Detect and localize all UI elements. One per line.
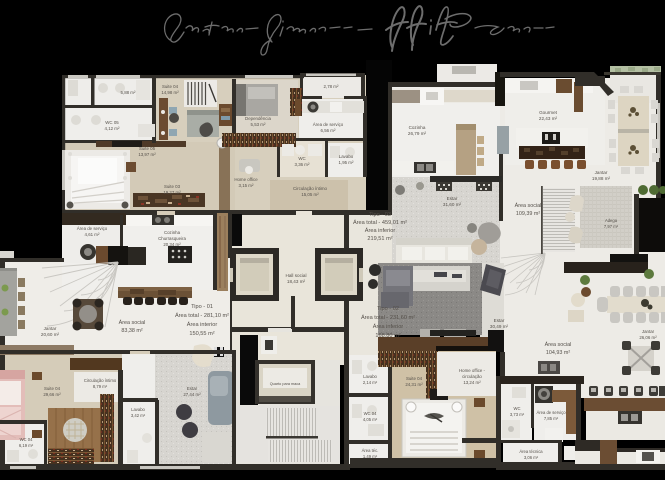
svg-text:Área interior: Área interior bbox=[187, 321, 218, 328]
svg-text:150,55 m²: 150,55 m² bbox=[189, 331, 214, 337]
svg-text:Suite 04: Suite 04 bbox=[406, 376, 423, 381]
svg-text:20,34 m²: 20,34 m² bbox=[163, 242, 181, 247]
svg-text:circulação: circulação bbox=[462, 374, 482, 379]
svg-text:30,49 m²: 30,49 m² bbox=[490, 324, 509, 329]
svg-text:19,88 m²: 19,88 m² bbox=[592, 176, 611, 181]
svg-text:Hall social: Hall social bbox=[286, 273, 307, 278]
svg-text:168,80 m²: 168,80 m² bbox=[375, 333, 400, 339]
svg-text:26,79 m²: 26,79 m² bbox=[408, 131, 427, 136]
svg-text:Área social: Área social bbox=[515, 202, 542, 209]
svg-text:3,42 m²: 3,42 m² bbox=[131, 413, 146, 418]
svg-text:Área total - 281,10 m²: Área total - 281,10 m² bbox=[175, 312, 229, 319]
svg-text:2,14 m²: 2,14 m² bbox=[363, 380, 378, 385]
svg-text:Suite 03: Suite 03 bbox=[164, 184, 181, 189]
svg-text:Área de serviço: Área de serviço bbox=[536, 410, 566, 415]
svg-text:Home office: Home office bbox=[234, 177, 258, 182]
svg-text:Área de serviço: Área de serviço bbox=[77, 226, 108, 231]
svg-text:Área téc.: Área téc. bbox=[362, 448, 379, 453]
svg-text:7,97 m²: 7,97 m² bbox=[604, 224, 619, 229]
svg-text:3,06 m²: 3,06 m² bbox=[524, 455, 539, 460]
svg-text:13,24 m²: 13,24 m² bbox=[463, 380, 481, 385]
svg-text:3,73 m²: 3,73 m² bbox=[510, 412, 525, 417]
svg-text:15,05 m²: 15,05 m² bbox=[301, 192, 319, 197]
svg-text:31,60 m²: 31,60 m² bbox=[443, 202, 462, 207]
svg-text:Jantar: Jantar bbox=[595, 170, 608, 175]
svg-text:24,31 m²: 24,31 m² bbox=[405, 382, 423, 387]
svg-text:6,56 m²: 6,56 m² bbox=[321, 128, 336, 133]
svg-text:Lavabo: Lavabo bbox=[339, 154, 354, 159]
svg-text:29,66 m²: 29,66 m² bbox=[43, 392, 61, 397]
svg-text:Área total - 459,01 m²: Área total - 459,01 m² bbox=[353, 219, 407, 226]
svg-text:Estar: Estar bbox=[447, 196, 458, 201]
svg-text:109,39 m²: 109,39 m² bbox=[516, 211, 540, 217]
svg-text:WC: WC bbox=[514, 406, 521, 411]
svg-text:26,06 m²: 26,06 m² bbox=[639, 335, 657, 340]
svg-text:WC 04: WC 04 bbox=[364, 411, 377, 416]
svg-text:Área inferior: Área inferior bbox=[373, 323, 404, 330]
svg-text:3,15 m²: 3,15 m² bbox=[239, 183, 254, 188]
svg-text:18,43 m²: 18,43 m² bbox=[287, 279, 306, 284]
svg-text:27,44 m²: 27,44 m² bbox=[183, 392, 201, 397]
svg-text:20,60 m²: 20,60 m² bbox=[41, 332, 60, 337]
svg-text:Tipo - 03: Tipo - 03 bbox=[369, 212, 391, 218]
svg-text:Cozinha: Cozinha bbox=[409, 125, 426, 130]
svg-text:5,88 m²: 5,88 m² bbox=[121, 90, 136, 95]
svg-text:Cozinha: Cozinha bbox=[164, 230, 181, 235]
svg-text:8,79 m²: 8,79 m² bbox=[93, 384, 108, 389]
svg-text:Churrasqueira: Churrasqueira bbox=[158, 236, 186, 241]
svg-text:Área técnica: Área técnica bbox=[519, 449, 543, 454]
svg-text:7,85 m²: 7,85 m² bbox=[544, 416, 559, 421]
svg-text:Estar: Estar bbox=[187, 386, 198, 391]
svg-text:5,53 m²: 5,53 m² bbox=[251, 122, 266, 127]
svg-text:WC: WC bbox=[298, 156, 305, 161]
svg-text:WC 04: WC 04 bbox=[20, 437, 33, 442]
svg-text:14,98 m²: 14,98 m² bbox=[161, 90, 179, 95]
svg-text:Adega: Adega bbox=[605, 218, 618, 223]
svg-text:4,61 m²: 4,61 m² bbox=[85, 232, 100, 237]
svg-text:Lavabo: Lavabo bbox=[363, 374, 377, 379]
svg-text:Área social: Área social bbox=[119, 319, 146, 326]
svg-text:19,27 m²: 19,27 m² bbox=[163, 190, 181, 195]
svg-text:Área de serviço: Área de serviço bbox=[313, 122, 344, 127]
svg-text:Área total - 231,60 m²: Área total - 231,60 m² bbox=[361, 314, 415, 321]
svg-text:104,93 m²: 104,93 m² bbox=[546, 350, 570, 356]
svg-text:Gourmet: Gourmet bbox=[539, 110, 558, 115]
svg-text:Suite 04: Suite 04 bbox=[162, 84, 179, 89]
svg-text:4,05 m²: 4,05 m² bbox=[363, 417, 378, 422]
svg-text:4,12 m²: 4,12 m² bbox=[105, 126, 120, 131]
svg-text:Suite 05: Suite 05 bbox=[139, 146, 156, 151]
svg-text:Suite 04: Suite 04 bbox=[44, 386, 61, 391]
svg-text:13,97 m²: 13,97 m² bbox=[138, 152, 156, 157]
svg-text:Lavabo: Lavabo bbox=[131, 407, 145, 412]
svg-text:Jantar: Jantar bbox=[642, 329, 655, 334]
svg-text:Jantar: Jantar bbox=[44, 326, 57, 331]
svg-text:Tipo - 01: Tipo - 01 bbox=[191, 304, 213, 310]
svg-text:6,19 m²: 6,19 m² bbox=[19, 443, 34, 448]
svg-text:Área inferior: Área inferior bbox=[365, 227, 396, 234]
svg-text:Estar: Estar bbox=[494, 318, 505, 323]
svg-text:Circulação íntimo: Circulação íntimo bbox=[293, 186, 327, 191]
svg-text:219,51 m²: 219,51 m² bbox=[367, 236, 392, 242]
svg-text:1,95 m²: 1,95 m² bbox=[339, 160, 354, 165]
svg-text:2,78 m²: 2,78 m² bbox=[324, 84, 339, 89]
svg-text:Tipo - 02: Tipo - 02 bbox=[377, 306, 399, 312]
svg-text:Dependência: Dependência bbox=[245, 116, 271, 121]
svg-text:Circulação íntimo: Circulação íntimo bbox=[84, 378, 117, 383]
svg-text:Área social: Área social bbox=[545, 341, 572, 348]
svg-text:Home office -: Home office - bbox=[459, 368, 486, 373]
svg-text:Quarto para maca: Quarto para maca bbox=[270, 382, 301, 386]
svg-text:WC 05: WC 05 bbox=[105, 120, 119, 125]
svg-text:3,36 m²: 3,36 m² bbox=[295, 162, 310, 167]
svg-text:83,38 m²: 83,38 m² bbox=[121, 328, 142, 334]
svg-text:22,43 m²: 22,43 m² bbox=[539, 116, 558, 121]
